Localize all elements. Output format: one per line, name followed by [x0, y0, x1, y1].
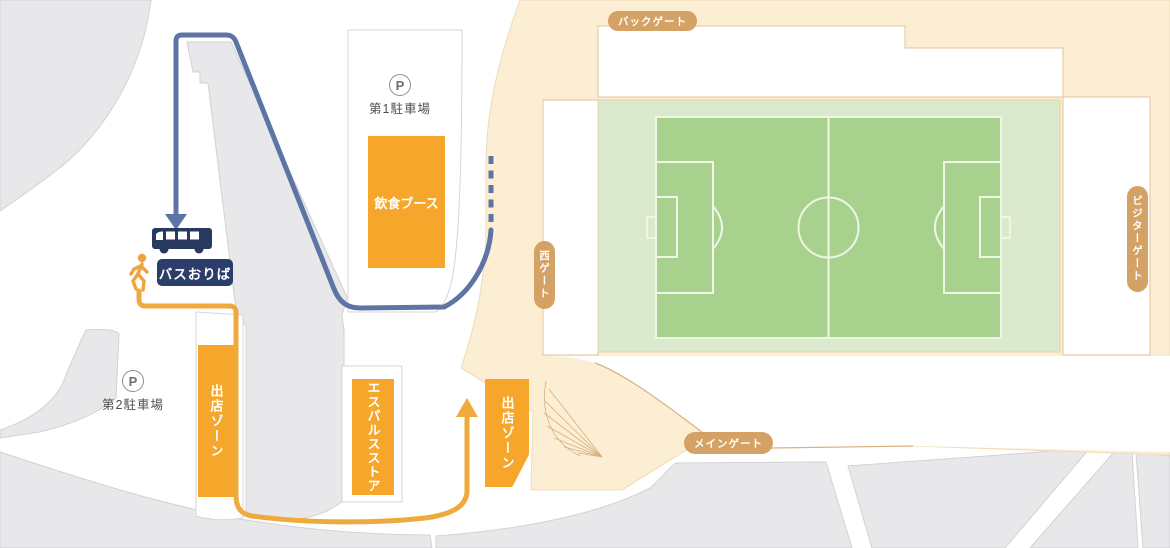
- walking-person-icon: [131, 254, 147, 290]
- stadium-access-map: 飲食ブース 出店ゾーン エスパルスストア 出店ゾーン バスおりば バックゲート …: [0, 0, 1170, 548]
- visitor-gate-label: ビジターゲート: [1130, 195, 1145, 283]
- main-gate-label: メインゲート: [694, 436, 763, 451]
- vendor-zone-right-label: 出店ゾーン: [498, 396, 517, 471]
- parking2-icon: P: [122, 370, 144, 392]
- bus-stop-label: バスおりば: [157, 259, 233, 286]
- food-booth-box: 飲食ブース: [368, 136, 445, 268]
- spulse-store-label: エスパルスストア: [364, 381, 383, 493]
- parking1-icon: P: [389, 74, 411, 96]
- bus-stop-text: バスおりば: [159, 263, 232, 283]
- block-bottom-right-3: [1136, 452, 1170, 548]
- vendor-zone-left-label: 出店ゾーン: [207, 384, 226, 459]
- walk-route-arrow: [456, 398, 478, 417]
- parking2-p: P: [129, 374, 138, 389]
- back-gate-pill: バックゲート: [608, 11, 697, 31]
- parking2-label: 第2駐車場: [78, 394, 188, 413]
- visitor-gate-pill: ビジターゲート: [1127, 186, 1148, 292]
- west-gate-pill: 西ゲート: [534, 241, 555, 309]
- main-gate-pill: メインゲート: [684, 432, 773, 454]
- spulse-store-box: エスパルスストア: [352, 379, 394, 495]
- parking1-p: P: [396, 78, 405, 93]
- food-booth-label: 飲食ブース: [374, 193, 438, 212]
- soccer-field: [647, 117, 1010, 338]
- west-gate-label: 西ゲート: [537, 250, 552, 300]
- parking1-label: 第1駐車場: [345, 98, 455, 117]
- block-left-strip: [0, 330, 119, 439]
- back-gate-label: バックゲート: [618, 14, 687, 29]
- bus-icon: [152, 228, 212, 254]
- block-top-left: [0, 0, 151, 211]
- vendor-zone-left-box: 出店ゾーン: [198, 345, 234, 497]
- stand-west: [543, 100, 598, 355]
- bus-route-arrow: [165, 214, 187, 230]
